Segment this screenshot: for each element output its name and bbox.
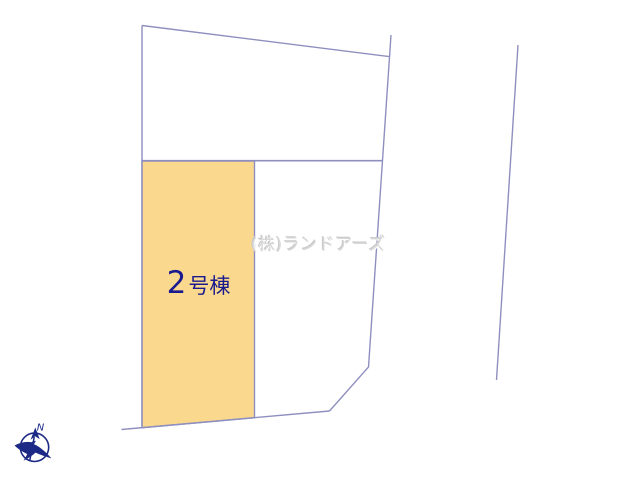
- east-boundary-line: [330, 35, 392, 411]
- compass-north-icon: N: [15, 423, 52, 462]
- site-plan: N (株)ランドアーズ 2号棟: [0, 0, 640, 480]
- east-road-edge-line: [497, 45, 519, 380]
- lot-suffix: 号棟: [188, 274, 230, 298]
- watermark: (株)ランドアーズ: [251, 230, 386, 255]
- lot-label: 2号棟: [142, 268, 255, 299]
- north-boundary-line: [142, 26, 389, 57]
- lot-number: 2: [167, 265, 187, 301]
- compass-north-label: N: [37, 423, 45, 434]
